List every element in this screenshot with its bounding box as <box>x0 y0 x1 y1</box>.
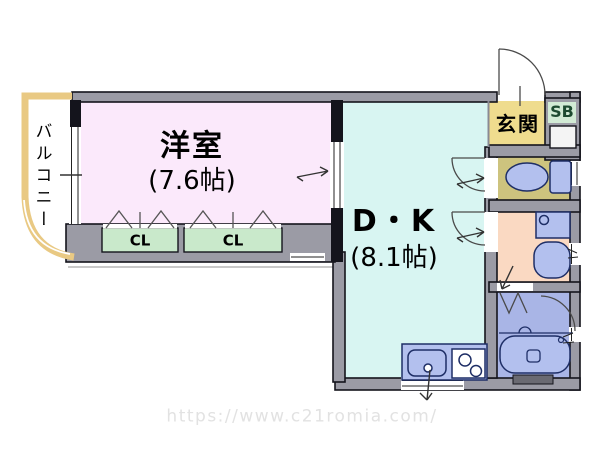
sliding-door-western-dk <box>330 142 344 208</box>
toilet-door-opening <box>484 158 498 198</box>
washroom-wall-opening <box>569 243 581 265</box>
western-room-bottom-window <box>290 253 325 261</box>
bathroom-bottom-window <box>513 375 553 384</box>
closet-right-label: CL <box>223 234 244 249</box>
western-room-size: (7.6帖) <box>148 168 236 194</box>
watermark-url: https://www.c21romia.com/ <box>166 409 437 426</box>
dk-room-size: (8.1帖) <box>350 245 438 271</box>
kitchen-counter-icon <box>402 344 487 380</box>
dk-room-label: D・K <box>352 207 436 237</box>
entry-door-swing <box>499 49 545 106</box>
closet-left-label: CL <box>130 234 151 249</box>
washing-machine-pan-icon <box>536 212 570 238</box>
toilet-icon <box>506 161 571 193</box>
balcony-label: バルコニー <box>33 122 50 232</box>
entrance-label: 玄関 <box>496 114 540 134</box>
shoebox-label: SB <box>550 104 574 120</box>
floorplan-drawing <box>0 0 600 450</box>
western-room-label: 洋室 <box>160 132 224 162</box>
balcony-window <box>60 127 82 224</box>
floorplan-image: 洋室 (7.6帖) D・K (8.1帖) 玄関 SB CL CL バルコニー h… <box>0 0 600 450</box>
washroom-door-opening <box>484 212 498 252</box>
